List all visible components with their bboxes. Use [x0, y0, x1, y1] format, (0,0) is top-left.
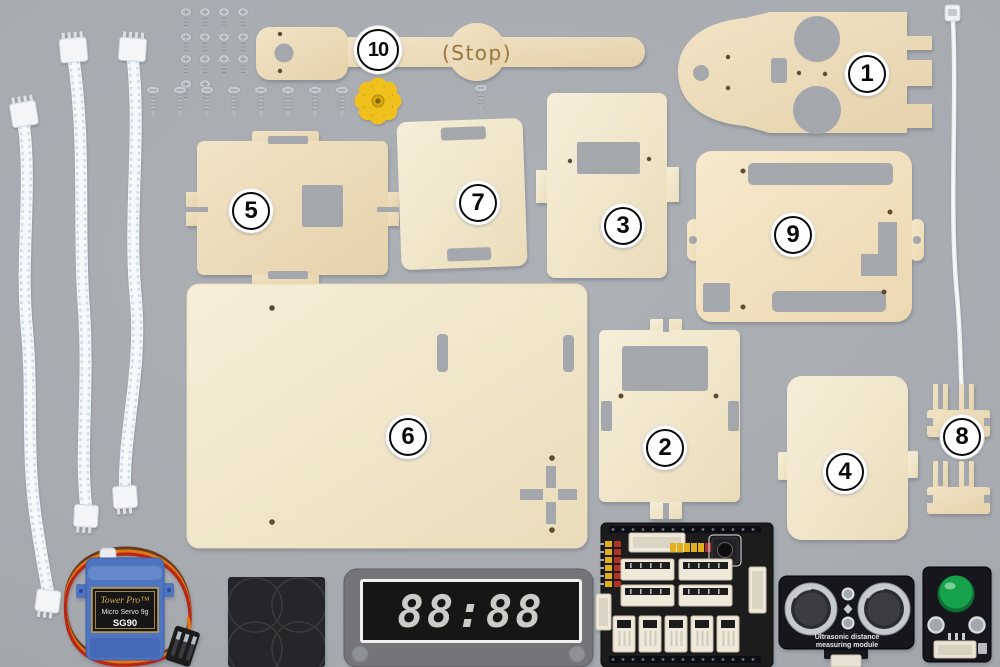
long-screw	[147, 86, 160, 118]
long-screw	[228, 86, 241, 118]
part-7-cover-plate	[396, 118, 527, 270]
jst-connector	[679, 559, 732, 580]
cable-3	[112, 31, 147, 515]
controller-board	[596, 523, 773, 667]
servo-model-text: SG90	[113, 618, 137, 629]
kit-photo-stage: (Stop)	[0, 0, 1000, 667]
servo-model-line-text: Micro Servo 9g	[101, 609, 148, 616]
long-screw	[309, 86, 322, 118]
jst-connector	[621, 585, 674, 606]
servo-connector	[165, 625, 201, 667]
part-9-controller-plate	[687, 151, 924, 322]
bracket-top	[927, 383, 990, 437]
cable-2	[58, 31, 98, 534]
jst-connector	[665, 616, 687, 652]
seven-segment-readout: 88:88	[397, 587, 544, 638]
ultrasonic-label-line2: measuring module	[816, 642, 878, 649]
servo-horn	[355, 78, 402, 125]
servo-motor: Tower Pro™ Micro Servo 9g SG90	[65, 548, 200, 667]
stop-engraving: (Stop)	[442, 41, 512, 65]
short-screw	[181, 55, 192, 76]
cable-1	[8, 94, 61, 619]
servo-label: Tower Pro™ Micro Servo 9g SG90	[92, 588, 158, 632]
part-6-base-board	[187, 284, 587, 548]
part-2-display-plate	[599, 317, 740, 519]
jst-connector	[679, 585, 732, 606]
short-screw	[181, 8, 192, 29]
part-5-servo-plate	[186, 131, 399, 287]
led-module	[923, 567, 991, 662]
long-screw	[174, 86, 187, 118]
short-screw	[238, 8, 249, 29]
jst-connector	[613, 616, 635, 652]
transducer-left	[785, 583, 837, 635]
long-screw	[475, 84, 488, 111]
short-screw	[219, 33, 230, 54]
zip-tie	[945, 5, 962, 392]
transducer-right	[858, 583, 910, 635]
jst-connector	[691, 616, 713, 652]
short-screw	[238, 55, 249, 76]
short-screw	[219, 8, 230, 29]
bracket-bottom	[927, 460, 990, 514]
short-screw	[200, 8, 211, 29]
jst-connector	[621, 559, 674, 580]
short-screw	[181, 33, 192, 54]
short-screw	[219, 55, 230, 76]
ultrasonic-label-line1: Ultrasonic distance	[815, 634, 880, 641]
short-screw	[200, 33, 211, 54]
part-10-stop-arm: (Stop)	[256, 23, 645, 81]
green-led	[940, 576, 973, 609]
part-1-head-plate	[678, 12, 932, 134]
part-8-brackets	[927, 383, 990, 514]
part-4-side-plate	[778, 376, 918, 540]
long-screw	[201, 86, 214, 118]
long-screw	[255, 86, 268, 118]
servo-brand-text: Tower Pro™	[101, 596, 151, 606]
jst-connector	[717, 616, 739, 652]
display-module: 88:88	[344, 569, 593, 667]
long-screw	[282, 86, 295, 118]
long-screw	[336, 86, 349, 118]
short-screw	[238, 33, 249, 54]
short-screw	[200, 55, 211, 76]
part-3-front-plate	[536, 93, 679, 278]
foam-pad	[228, 577, 326, 667]
jst-connector	[639, 616, 661, 652]
jst-cables	[8, 31, 147, 619]
kit-photo: (Stop)	[0, 0, 1000, 667]
ultrasonic-module: Ultrasonic distance measuring module	[779, 576, 914, 667]
